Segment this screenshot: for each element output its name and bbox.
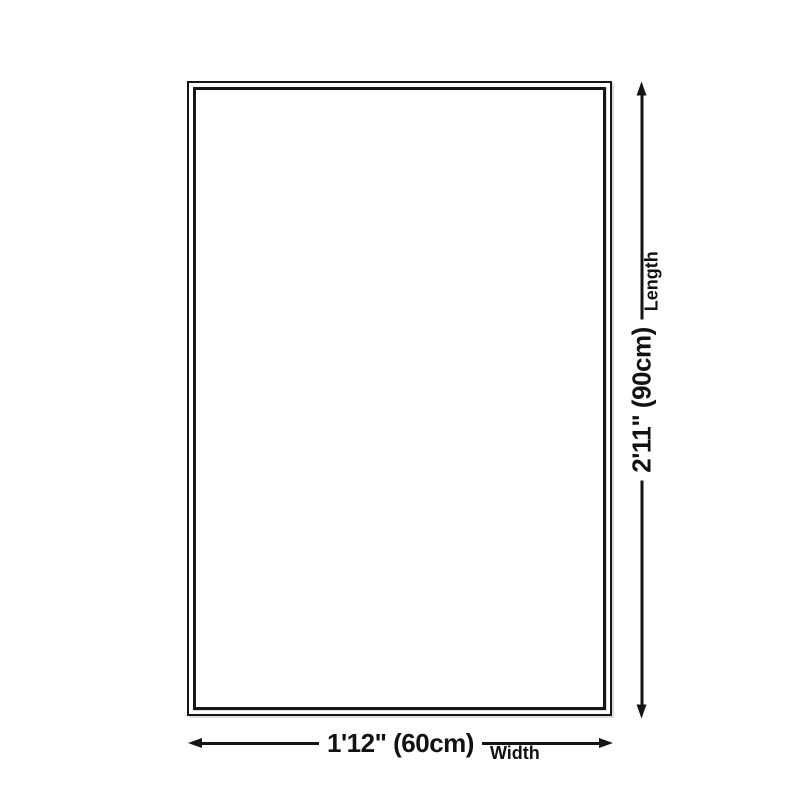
length-value: 2'11" (90cm) (623, 319, 659, 481)
width-dimension: 1'12" (60cm) Width (188, 725, 613, 761)
width-label: Width (490, 744, 540, 764)
rug-outline-outer (187, 81, 612, 716)
length-arrow-line-upper: Length (640, 95, 643, 319)
width-arrow-line-left (202, 742, 319, 745)
arrow-left-icon (188, 738, 202, 748)
width-value: 1'12" (60cm) (319, 725, 482, 761)
rug-outline-inner (193, 87, 606, 710)
arrow-up-icon (636, 81, 646, 95)
size-diagram: 2'11" (90cm) Length 1'12" (60cm) Width (0, 0, 800, 800)
length-dimension: 2'11" (90cm) Length (623, 81, 659, 718)
length-arrow-line-lower (640, 480, 643, 704)
width-arrow-line-right: Width (482, 742, 599, 745)
length-label: Length (642, 251, 662, 311)
arrow-down-icon (636, 704, 646, 718)
arrow-right-icon (599, 738, 613, 748)
